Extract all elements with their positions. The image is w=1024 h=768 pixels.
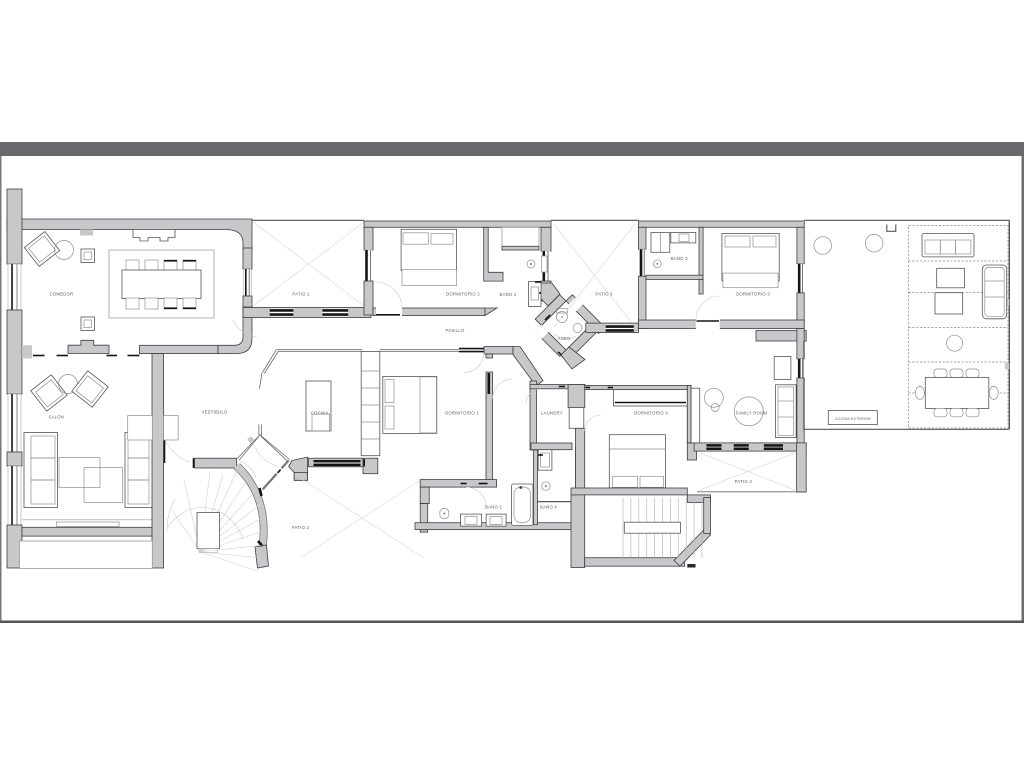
svg-text:LAUNDRY: LAUNDRY [541, 411, 563, 416]
svg-text:VESTÍBULO: VESTÍBULO [202, 410, 228, 415]
svg-text:COCINA: COCINA [311, 411, 329, 416]
svg-text:COMEDOR: COMEDOR [50, 292, 74, 297]
svg-text:PATIO 4: PATIO 4 [735, 479, 753, 484]
svg-text:BAÑO 3: BAÑO 3 [671, 256, 688, 261]
svg-text:ASEO: ASEO [558, 336, 571, 341]
svg-text:PATIO 3: PATIO 3 [595, 292, 613, 297]
svg-text:DORMITORIO 2: DORMITORIO 2 [446, 292, 480, 297]
svg-text:BAÑO 4: BAÑO 4 [540, 505, 557, 510]
svg-text:PASILLO: PASILLO [446, 328, 465, 333]
svg-text:PATIO 1: PATIO 1 [292, 292, 310, 297]
svg-text:DORMITORIO 4: DORMITORIO 4 [634, 411, 668, 416]
svg-text:BAÑO 1: BAÑO 1 [485, 505, 502, 510]
svg-text:DORMITORIO 3: DORMITORIO 3 [736, 292, 770, 297]
svg-text:COCINA EXTERIOR: COCINA EXTERIOR [835, 417, 871, 421]
svg-text:BAÑO 2: BAÑO 2 [500, 292, 517, 297]
svg-text:FAMILY ROOM: FAMILY ROOM [736, 411, 768, 416]
svg-text:SALÓN: SALÓN [49, 415, 65, 420]
svg-text:PATIO 2: PATIO 2 [292, 525, 310, 530]
svg-text:DORMITORIO 1: DORMITORIO 1 [445, 411, 479, 416]
